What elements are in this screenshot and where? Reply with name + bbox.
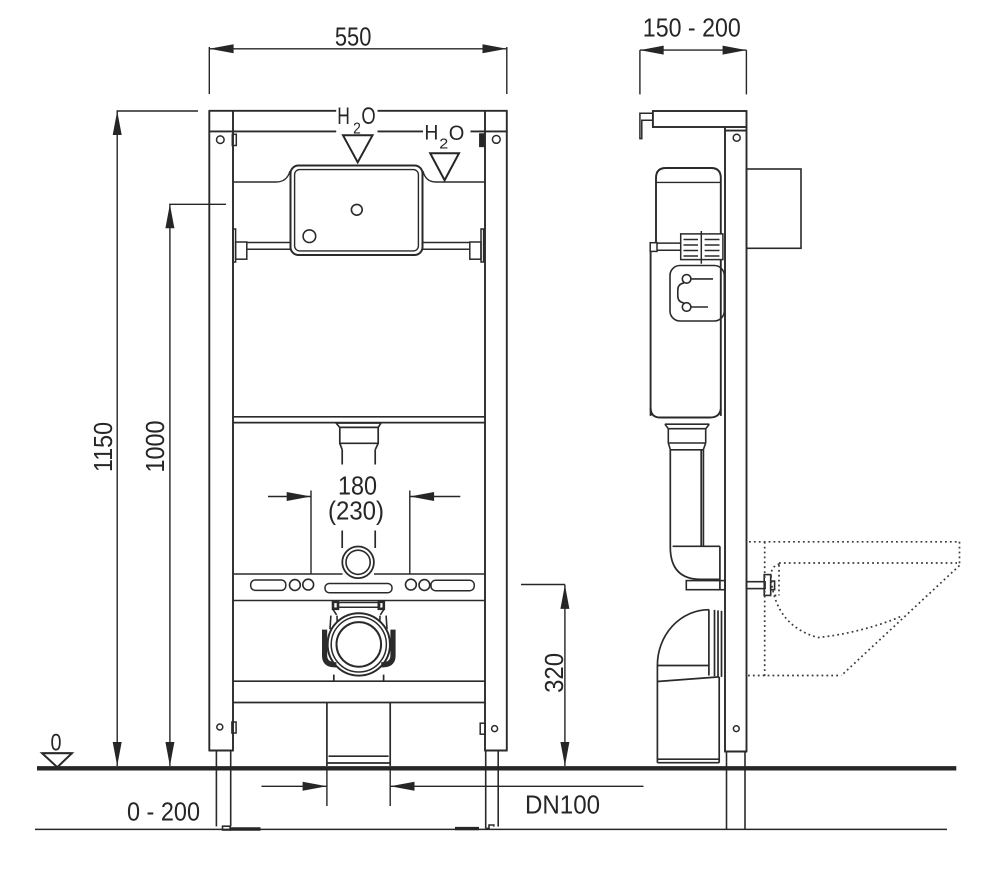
svg-text:320: 320 [541, 653, 569, 693]
svg-text:550: 550 [335, 23, 372, 51]
svg-text:O: O [449, 121, 465, 145]
svg-text:150 - 200: 150 - 200 [643, 14, 741, 42]
svg-text:DN100: DN100 [525, 792, 600, 820]
svg-text:2: 2 [439, 137, 448, 153]
svg-text:(230): (230) [328, 498, 384, 526]
svg-text:180: 180 [338, 473, 377, 501]
svg-text:0 - 200: 0 - 200 [127, 799, 200, 827]
svg-text:H: H [337, 104, 350, 130]
svg-text:O: O [361, 104, 375, 130]
svg-text:1000: 1000 [142, 421, 170, 473]
svg-text:H: H [424, 121, 438, 145]
svg-text:1150: 1150 [90, 422, 118, 472]
